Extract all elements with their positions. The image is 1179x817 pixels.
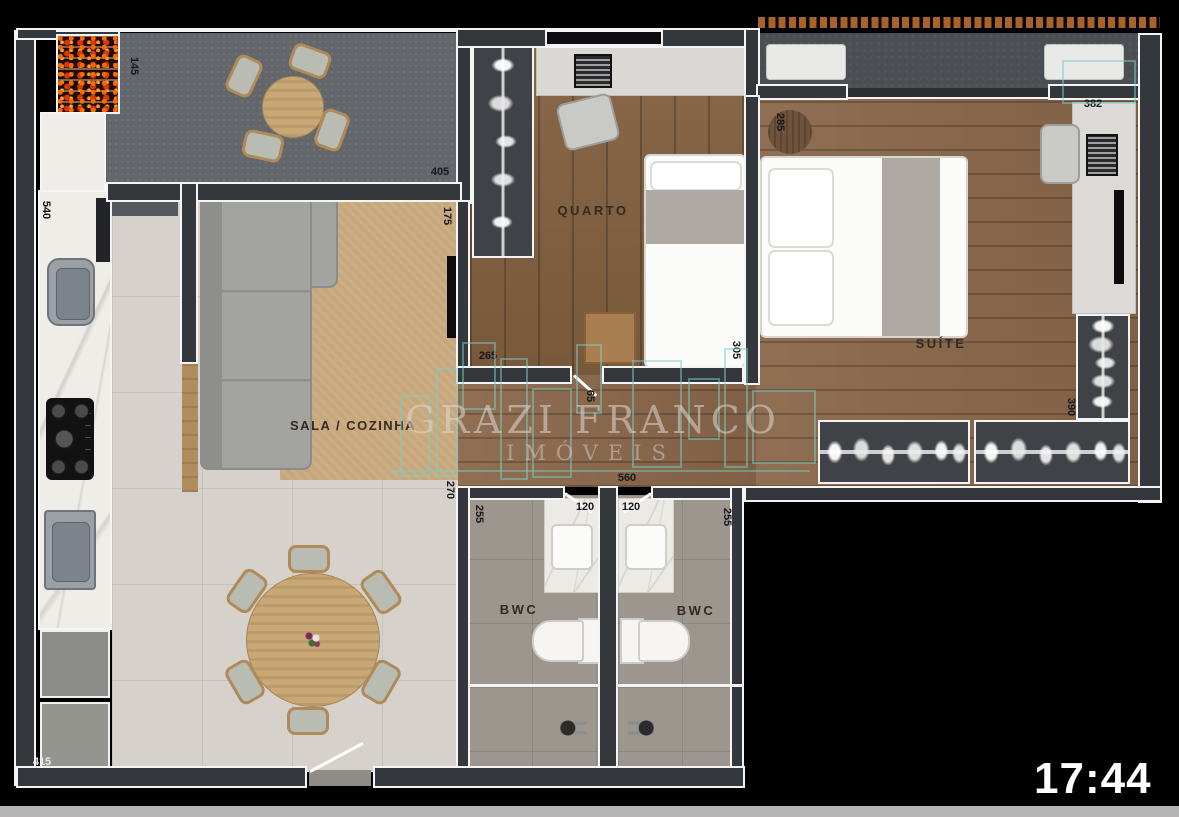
bedroom-window xyxy=(545,30,663,46)
balcony-sliding-door xyxy=(848,88,1048,97)
bath1-basin xyxy=(551,524,593,570)
bedroom-suite-wall xyxy=(744,95,760,385)
bath1-shower-glass xyxy=(470,684,598,687)
terrace-sideboard xyxy=(112,202,178,216)
double-bed-pillow-2 xyxy=(768,250,834,326)
suite-bottom-wall xyxy=(744,486,1162,502)
bath1-toilet-bowl xyxy=(532,620,584,662)
kitchen-tv-panel xyxy=(96,198,110,262)
bath-center-wall xyxy=(598,486,618,776)
outer-wall-bottom-left xyxy=(16,766,307,788)
suite-label: SUÍTE xyxy=(881,336,1001,351)
kitchen-cooktop xyxy=(46,398,94,480)
barbecue-grill xyxy=(56,34,120,114)
bath2-toilet-bowl xyxy=(638,620,690,662)
watermark-skyline-baseline xyxy=(390,470,810,472)
dim-bath1-width: 120 xyxy=(576,501,594,513)
watermark-skyline-piece xyxy=(500,358,528,480)
terrace-sink-niche xyxy=(40,112,106,192)
balcony-sliding-door-track xyxy=(848,97,1048,99)
pergola-slats xyxy=(758,17,1160,28)
living-wall-stub xyxy=(180,182,198,364)
double-bed xyxy=(760,156,968,338)
bedroom-wardrobe xyxy=(472,42,534,258)
double-bed-runner xyxy=(882,158,940,336)
suite-chair xyxy=(1040,124,1080,184)
single-bed xyxy=(644,154,746,368)
kitchen-sink-top xyxy=(47,258,95,326)
bathroom2-label: BWC xyxy=(656,603,736,618)
dim-terrace-grill: 145 xyxy=(128,57,140,75)
kitchen-cabinet-1 xyxy=(40,630,110,698)
dim-kitchen-bottom: 415 xyxy=(33,756,51,768)
watermark-skyline-piece xyxy=(724,348,748,468)
watermark-skyline-piece xyxy=(532,388,572,478)
terrace-table xyxy=(262,76,324,138)
single-bed-pillow xyxy=(650,161,742,191)
terrace-top-edge xyxy=(56,28,462,32)
kitchen-sink-top-basin xyxy=(56,268,90,320)
bath2-top-wall xyxy=(651,486,732,500)
wood-cabinet xyxy=(182,364,198,492)
terrace-living-wall xyxy=(106,182,462,202)
watermark-skyline-piece xyxy=(632,360,682,468)
suite-wardrobe-bottom-1 xyxy=(818,420,970,484)
kitchen-sink-bottom xyxy=(44,510,96,590)
progress-bar xyxy=(0,806,1179,817)
bath1-top-wall xyxy=(468,486,565,500)
entrance-threshold xyxy=(309,770,371,786)
balcony-bench-left xyxy=(766,44,846,80)
suite-laptop xyxy=(1086,134,1118,176)
bedroom-label: QUARTO xyxy=(513,203,673,218)
watermark-skyline-piece xyxy=(436,368,458,477)
dim-bath2-width: 120 xyxy=(622,501,640,513)
dim-living-top: 175 xyxy=(441,207,453,225)
watermark-skyline-piece xyxy=(576,344,602,414)
dim-suite-left-depth: 285 xyxy=(774,113,786,131)
watermark-skyline-piece xyxy=(462,342,496,410)
terrace-bedroom-wall xyxy=(456,28,472,204)
dining-chair-s xyxy=(287,707,329,735)
bath2-basin xyxy=(625,524,667,570)
watermark-skyline-piece xyxy=(752,390,816,464)
dim-living-right: 270 xyxy=(444,481,456,499)
bathroom1-label: BWC xyxy=(479,602,559,617)
dim-kitchen-counter: 540 xyxy=(40,201,52,219)
suite-tv xyxy=(1114,190,1124,284)
dim-hall-width: 560 xyxy=(618,472,636,484)
video-timestamp: 17:44 xyxy=(1034,754,1152,804)
sofa-backrest xyxy=(200,196,222,470)
dining-chair-n xyxy=(288,545,330,573)
dining-centerpiece xyxy=(303,630,323,650)
watermark-skyline-piece xyxy=(400,395,430,477)
kitchen-sink-bottom-basin xyxy=(52,522,90,582)
dim-suite-right-depth: 390 xyxy=(1065,398,1077,416)
bath1-shower-head xyxy=(560,712,586,744)
outer-wall-bottom-right xyxy=(373,766,745,788)
suite-wardrobe-right xyxy=(1076,314,1130,420)
bath2-shower-head xyxy=(628,712,654,744)
bedroom-laptop xyxy=(574,54,612,88)
watermark-skyline-piece xyxy=(688,378,720,440)
suite-wardrobe-bottom-2 xyxy=(974,420,1130,484)
bedroom-desk xyxy=(536,42,748,96)
bath2-shower-glass xyxy=(618,684,742,687)
bath-right-wall xyxy=(730,486,744,776)
floorplan-canvas: QUARTO SUÍTE SALA / COZINHA BWC BWC 145 … xyxy=(0,0,1179,817)
dim-bath2-depth: 255 xyxy=(721,508,733,526)
balcony-divider-left xyxy=(756,84,848,100)
outer-wall-right xyxy=(1138,33,1162,503)
outer-wall-left xyxy=(14,30,36,786)
bath-left-wall xyxy=(456,486,470,776)
double-bed-pillow-1 xyxy=(768,168,834,248)
watermark-skyline-piece xyxy=(1062,60,1136,104)
dim-bath1-depth: 255 xyxy=(473,505,485,523)
dim-terrace-length: 405 xyxy=(431,166,449,178)
